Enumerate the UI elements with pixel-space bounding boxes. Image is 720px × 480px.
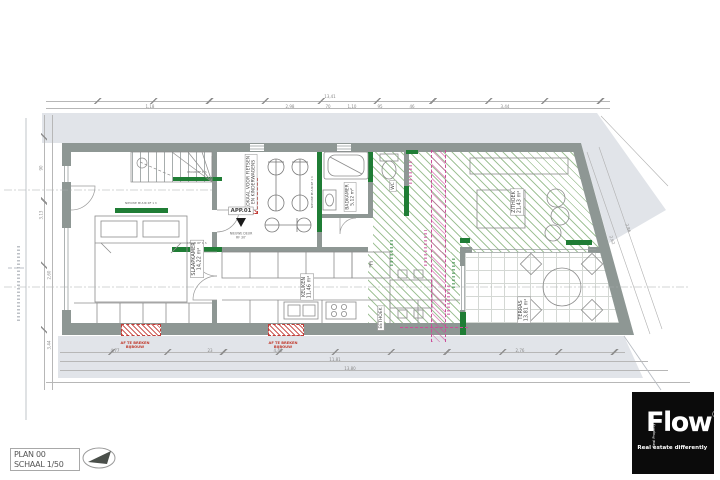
dim-top-2: 70 [325, 104, 330, 109]
room-label-lokaal: LOKAAL VOOR FIETSEN EN KINDERWAGENS [245, 154, 257, 210]
bedroom-closets [74, 303, 212, 323]
floor-plan-sheet: AF TE BREKEN BIJBOUW AF TE BREKEN BIJBOU… [0, 0, 720, 480]
fridge-label: F [369, 261, 374, 270]
room-label-slaapkamer: SLAAPKAMER 14,22 m² [190, 240, 204, 278]
bathtub [324, 152, 368, 179]
dim-line-bottom-2 [60, 361, 648, 362]
room-label-eethoek: EETHOEK [377, 305, 384, 330]
dim-top-3: 1,10 [348, 104, 357, 109]
plan-number: PLAN 00 [14, 450, 76, 460]
dim-top-total: 13,41 [324, 94, 335, 99]
kitchen-hob [326, 302, 356, 319]
entrance-marker-icon [236, 218, 246, 227]
demolished-radiator-2 [268, 324, 304, 336]
wall-label-2: MUUR RF 1 h [187, 170, 206, 173]
dim-line-bottom-4 [46, 382, 690, 383]
room-label-zithoek: ZITHOEK 21,43 m² [510, 189, 524, 216]
dim-top-4: 95 [377, 104, 382, 109]
dim-bottom-1: 23 [207, 348, 212, 353]
magenta-annotation-2 [424, 230, 427, 266]
dim-bottom-0: 4,77 [111, 348, 120, 353]
dim-bottom-total: 13,80 [344, 366, 355, 371]
dim-bottom-3: 2,76 [516, 348, 525, 353]
dim-left-3: 3,44 [47, 341, 52, 350]
magenta-annotation-1 [409, 160, 412, 184]
dim-top-6: 3,44 [501, 104, 510, 109]
dining-table [390, 270, 432, 318]
wall-label-1: NIEUWE MUUR RF 1 h [125, 201, 157, 204]
dim-left-0: 90 [39, 165, 44, 170]
dim-left-2: 2,60 [47, 271, 52, 280]
dim-top-1: 2,98 [286, 104, 295, 109]
dim-bottom-2: 4,46 [274, 348, 283, 353]
kitchen-sink [284, 302, 318, 319]
magenta-centerline [400, 327, 468, 328]
wall-label-4: NIEUWE MUUR RF 1 h [310, 176, 313, 208]
toilet [380, 154, 398, 179]
room-label-terras: TERRAS 13,81 m² [517, 297, 531, 324]
bath-sink [323, 190, 336, 210]
street-name-text [17, 245, 20, 321]
plan-scale: SCHAAL 1/50 [14, 460, 76, 470]
green-annotation-1 [390, 240, 393, 266]
dim-ticks-bottom-1 [60, 349, 625, 355]
dim-bottom-sub: 11,81 [329, 357, 340, 362]
vent-duct-band [431, 150, 446, 342]
dim-top-0: 1,18 [146, 104, 155, 109]
logo-brand: Flow® [646, 407, 719, 438]
registered-mark: ® [711, 410, 719, 419]
title-block: PLAN 00 SCHAAL 1/50 [10, 448, 80, 471]
logo-tagline: Real estate differently [637, 444, 707, 451]
room-label-badkamer: BADKAMER 5,12 m² [344, 182, 356, 211]
door-spec-note: NIEUWE DEUR RF 30' [230, 232, 253, 240]
dim-line-bottom-3 [60, 370, 668, 371]
bed [95, 216, 187, 302]
green-annotation-2 [452, 258, 455, 288]
wall-label-3: MUUR RF 1 h [187, 241, 206, 244]
room-label-keuken: KEUKEN 11,46 m² [300, 274, 314, 301]
dim-line-left-2 [52, 115, 53, 390]
north-arrow-icon [80, 446, 118, 474]
bedroom-door-arc-2 [193, 276, 217, 300]
unit-label-app01: APP.01 [228, 207, 253, 216]
dim-left-1: 3,13 [39, 211, 44, 220]
demolished-radiator-1 [121, 324, 161, 336]
bicycles [265, 159, 311, 232]
dim-ticks-top-1 [46, 98, 610, 104]
dim-top-5: 46 [409, 104, 414, 109]
bathroom-door-arc [340, 218, 356, 234]
room-label-wc: WC [389, 180, 396, 192]
neighbor-buildings [42, 113, 666, 378]
entry-door-arc [71, 186, 95, 210]
magenta-annotation-3 [447, 285, 450, 315]
flow-logo: Real Property Flow® Real estate differen… [632, 392, 714, 474]
